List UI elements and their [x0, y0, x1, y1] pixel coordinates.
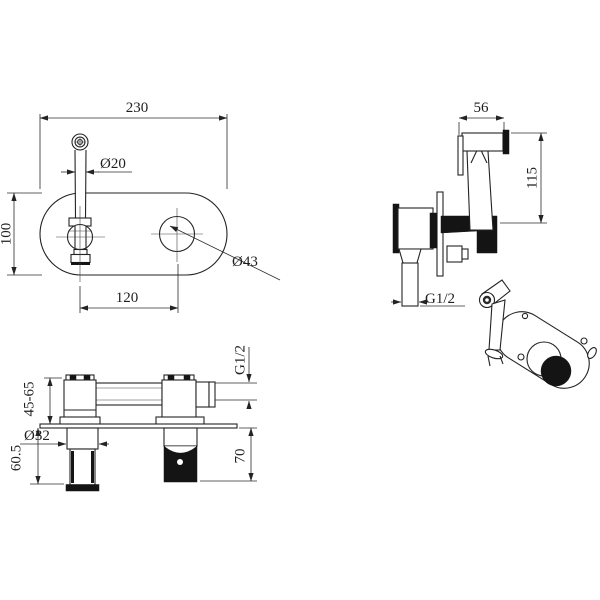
- front-view: 230 Ø20 100 Ø43 120: [0, 100, 280, 313]
- dim-text-4565: 45-65: [21, 382, 37, 417]
- wall-plate-section: [40, 424, 237, 428]
- outlet-pipe: [402, 263, 418, 306]
- dim-plate-width: 230: [40, 100, 227, 189]
- knob-face: [541, 356, 571, 386]
- drawing-svg: 230 Ø20 100 Ø43 120: [0, 0, 600, 600]
- dim-inlet-thread: G1/2: [215, 345, 257, 409]
- dim-spout-diameter: Ø20: [61, 156, 132, 172]
- perspective-view: [480, 280, 599, 398]
- dim-text-g12-inlet: G1/2: [232, 345, 248, 375]
- sprayer-head: [462, 133, 503, 151]
- dim-text-d43: Ø43: [232, 254, 258, 270]
- connecting-tube: [96, 383, 162, 405]
- spout-tube: [75, 150, 76, 218]
- technical-drawing-canvas: 230 Ø20 100 Ø43 120: [0, 0, 600, 600]
- valve-body-side: [398, 208, 433, 249]
- handle-section: [164, 428, 197, 482]
- dim-text-100: 100: [0, 223, 14, 246]
- dim-text-g12-sprayer: G1/2: [425, 291, 455, 307]
- dim-head-width: 56: [459, 100, 504, 135]
- dim-text-d20: Ø20: [100, 156, 126, 172]
- sprayer-nozzle-face: [458, 136, 463, 175]
- dim-handle-projection: 70: [200, 428, 257, 481]
- dim-plate-height: 100: [0, 193, 42, 275]
- dim-wall-depth: 45-65: [21, 378, 62, 424]
- spout-valve-body: [60, 375, 100, 425]
- spout-section: [66, 428, 99, 491]
- inlet-port: [196, 382, 209, 407]
- dim-text-115: 115: [524, 167, 540, 189]
- sprayer-side-view: 56 G1/2 115: [391, 100, 547, 307]
- dim-text-605: 60.5: [8, 445, 24, 471]
- dim-text-230: 230: [126, 100, 149, 116]
- dim-text-56: 56: [474, 100, 490, 116]
- dim-text-70: 70: [232, 449, 248, 464]
- dim-text-120: 120: [116, 290, 139, 306]
- installed-section-view: Ø32 45-65 60.5 70: [8, 345, 257, 491]
- dim-text-d32: Ø32: [24, 428, 50, 444]
- wall-plate-side: [437, 192, 443, 276]
